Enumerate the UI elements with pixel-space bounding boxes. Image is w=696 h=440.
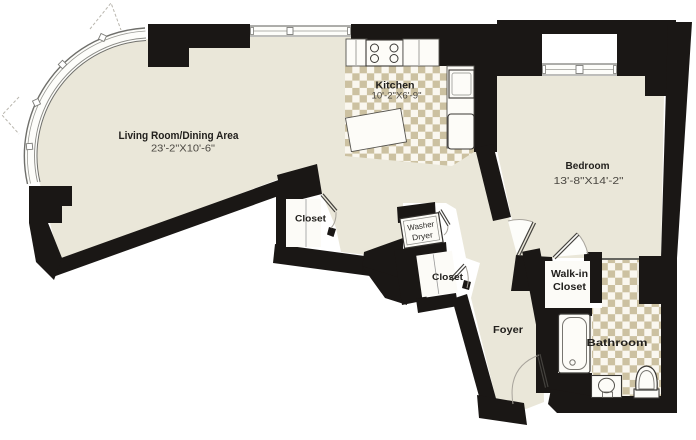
svg-text:Bathroom: Bathroom bbox=[587, 337, 648, 349]
svg-text:23'-2"X10'-6": 23'-2"X10'-6" bbox=[151, 144, 215, 155]
svg-text:Walk-in: Walk-in bbox=[551, 269, 588, 280]
svg-text:Bedroom: Bedroom bbox=[566, 160, 610, 172]
svg-text:Closet: Closet bbox=[553, 282, 587, 293]
svg-text:Closet: Closet bbox=[295, 214, 327, 225]
svg-text:Foyer: Foyer bbox=[493, 325, 523, 336]
svg-text:Living Room/Dining Area: Living Room/Dining Area bbox=[119, 130, 240, 142]
svg-text:10'-2"X6'-9": 10'-2"X6'-9" bbox=[372, 91, 422, 101]
svg-text:13'-8"X14'-2": 13'-8"X14'-2" bbox=[554, 176, 625, 187]
svg-text:Closet: Closet bbox=[432, 272, 464, 283]
